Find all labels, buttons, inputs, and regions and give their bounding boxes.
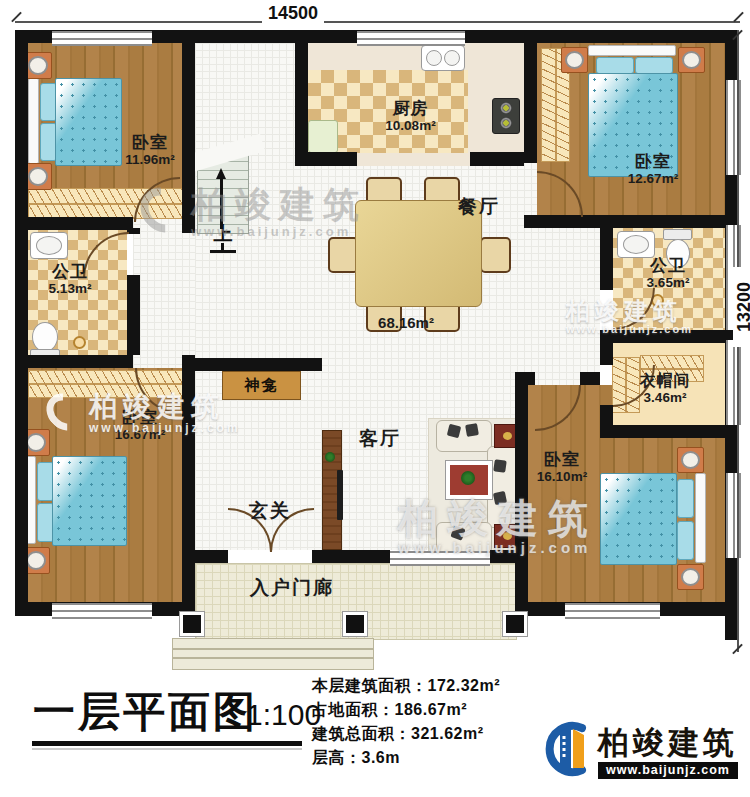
nightstand xyxy=(561,47,588,73)
drawing-title: 一层平面图 xyxy=(33,684,258,740)
room-label-cloakroom: 衣帽间 3.46m² xyxy=(622,372,708,405)
window xyxy=(565,603,660,619)
cushion xyxy=(493,459,507,473)
lamp xyxy=(26,433,46,452)
room-area: 5.13m² xyxy=(30,281,110,296)
lamp xyxy=(565,51,584,69)
company-url: www.baijunjz.com xyxy=(598,762,738,779)
room-name: 神龛 xyxy=(245,376,279,395)
room-label-bath-left: 公卫 5.13m² xyxy=(30,262,110,296)
stat-footprint-area: 占地面积：186.67m² xyxy=(312,700,467,720)
dining-chair xyxy=(480,237,511,273)
floor-drain xyxy=(73,336,86,349)
stair-arrow-icon xyxy=(216,168,226,179)
window xyxy=(390,551,490,566)
title-underline xyxy=(32,741,302,746)
drawing-scale: 1:100 xyxy=(246,698,321,732)
room-name: 卧室 xyxy=(105,133,195,152)
room-area: 12.67m² xyxy=(608,171,698,186)
tv xyxy=(337,470,343,520)
plant xyxy=(461,471,475,485)
room-area: 16.10m² xyxy=(522,469,602,484)
title-underline-shadow xyxy=(32,748,302,750)
wall xyxy=(295,152,357,166)
pillow xyxy=(677,521,694,560)
room-area: 11.96m² xyxy=(105,152,195,167)
sink-basin xyxy=(623,235,649,254)
porch-column xyxy=(503,612,527,636)
stat-floor-area: 本层建筑面积：172.32m² xyxy=(312,676,500,696)
wall xyxy=(470,152,524,166)
room-label-dining: 餐厅 xyxy=(446,196,512,217)
mattress xyxy=(52,456,127,546)
pillow xyxy=(635,57,673,74)
room-area: 3.65m² xyxy=(628,275,708,290)
sink-basin xyxy=(36,236,62,255)
decor xyxy=(503,432,512,440)
room-label-bedroom-br: 卧室 16.10m² xyxy=(522,450,602,484)
dimension-line-top xyxy=(15,21,740,23)
wall xyxy=(600,228,613,290)
sink-basin xyxy=(426,50,442,66)
porch-column xyxy=(343,612,367,636)
sink xyxy=(30,232,68,259)
lamp xyxy=(681,568,700,586)
nightstand xyxy=(677,564,704,590)
toilet xyxy=(32,322,58,352)
plant xyxy=(325,452,335,462)
shrine-cabinet: 神龛 xyxy=(222,371,301,400)
headboard xyxy=(28,78,39,164)
window xyxy=(52,31,152,46)
room-area: 3.46m² xyxy=(622,390,708,405)
room-label-porch: 入户门廊 xyxy=(232,577,352,598)
room-name: 公卫 xyxy=(628,256,708,275)
lamp xyxy=(26,551,46,570)
lamp xyxy=(28,167,48,186)
company-logo-icon xyxy=(540,716,594,780)
wall xyxy=(600,343,613,365)
headboard xyxy=(588,45,676,56)
lamp xyxy=(682,51,701,69)
porch-column xyxy=(180,612,204,636)
wall xyxy=(127,275,140,355)
corridor-floor xyxy=(133,217,195,368)
lamp xyxy=(28,56,48,75)
porch-steps xyxy=(172,638,374,670)
kitchen-cabinet xyxy=(308,120,338,153)
mattress xyxy=(600,473,677,565)
decor xyxy=(503,532,512,540)
wall xyxy=(15,217,133,230)
room-name: 餐厅 xyxy=(446,196,512,217)
sink xyxy=(617,231,655,258)
pillow xyxy=(677,479,694,518)
wall xyxy=(15,355,133,368)
room-area: 16.67m² xyxy=(95,427,185,442)
room-label-bedroom-bl: 卧室 16.67m² xyxy=(95,408,185,442)
lamp xyxy=(681,451,700,469)
wall xyxy=(600,330,725,343)
bed-bl xyxy=(25,456,125,544)
pillow xyxy=(596,57,634,74)
bed-br xyxy=(600,473,704,563)
floor-plan-page: 上 神龛 卧 xyxy=(0,0,750,797)
stove xyxy=(492,98,520,134)
kitchen-sink xyxy=(421,45,465,71)
room-name: 卧室 xyxy=(608,152,698,171)
cushion xyxy=(493,491,507,505)
stat-storey-height: 层高：3.6m xyxy=(312,748,400,768)
stairs-up-label: 上 xyxy=(205,221,241,247)
room-label-foyer: 玄关 xyxy=(238,500,302,521)
company-name: 柏竣建筑 xyxy=(598,722,738,764)
room-label-kitchen: 厨房 10.08m² xyxy=(368,99,453,133)
window xyxy=(357,31,465,46)
dimension-label-top: 14500 xyxy=(262,2,324,24)
wall xyxy=(182,355,195,602)
room-label-bedroom-tr: 卧室 12.67m² xyxy=(608,152,698,186)
wall xyxy=(515,372,528,602)
wall xyxy=(524,43,537,163)
wall xyxy=(15,30,28,612)
window xyxy=(52,603,152,619)
burner xyxy=(500,117,512,129)
armchair xyxy=(436,522,492,554)
room-area: 68.16m² xyxy=(366,315,446,332)
room-name: 入户门廊 xyxy=(232,577,352,598)
room-label-living: 客厅 xyxy=(350,428,410,449)
room-name: 卧室 xyxy=(95,408,185,427)
wall xyxy=(295,43,308,153)
room-name: 衣帽间 xyxy=(622,372,708,390)
armchair xyxy=(436,420,492,452)
cushion xyxy=(465,423,479,437)
wall xyxy=(580,372,600,385)
wall xyxy=(600,425,725,438)
stat-total-area: 建筑总面积：321.62m² xyxy=(312,724,484,744)
room-name: 公卫 xyxy=(30,262,110,281)
stair-mark xyxy=(210,250,236,253)
room-name: 客厅 xyxy=(350,428,410,449)
dimension-label-right: 13200 xyxy=(733,267,750,347)
sink-basin xyxy=(444,50,460,66)
nightstand xyxy=(678,47,705,73)
burner xyxy=(500,102,512,114)
logo-glyph xyxy=(540,716,594,780)
room-area: 10.08m² xyxy=(368,118,453,133)
wall xyxy=(195,358,322,371)
nightstand xyxy=(24,163,52,190)
room-name: 卧室 xyxy=(522,450,602,469)
hall-area-label: 68.16m² xyxy=(366,315,446,332)
headboard xyxy=(695,473,706,563)
nightstand xyxy=(677,447,704,473)
room-label-bath-right: 公卫 3.65m² xyxy=(628,256,708,290)
room-label-bedroom-tl: 卧室 11.96m² xyxy=(105,133,195,167)
room-name: 厨房 xyxy=(368,99,453,118)
wall xyxy=(312,550,390,563)
room-name: 玄关 xyxy=(238,500,302,521)
nightstand xyxy=(24,52,52,79)
